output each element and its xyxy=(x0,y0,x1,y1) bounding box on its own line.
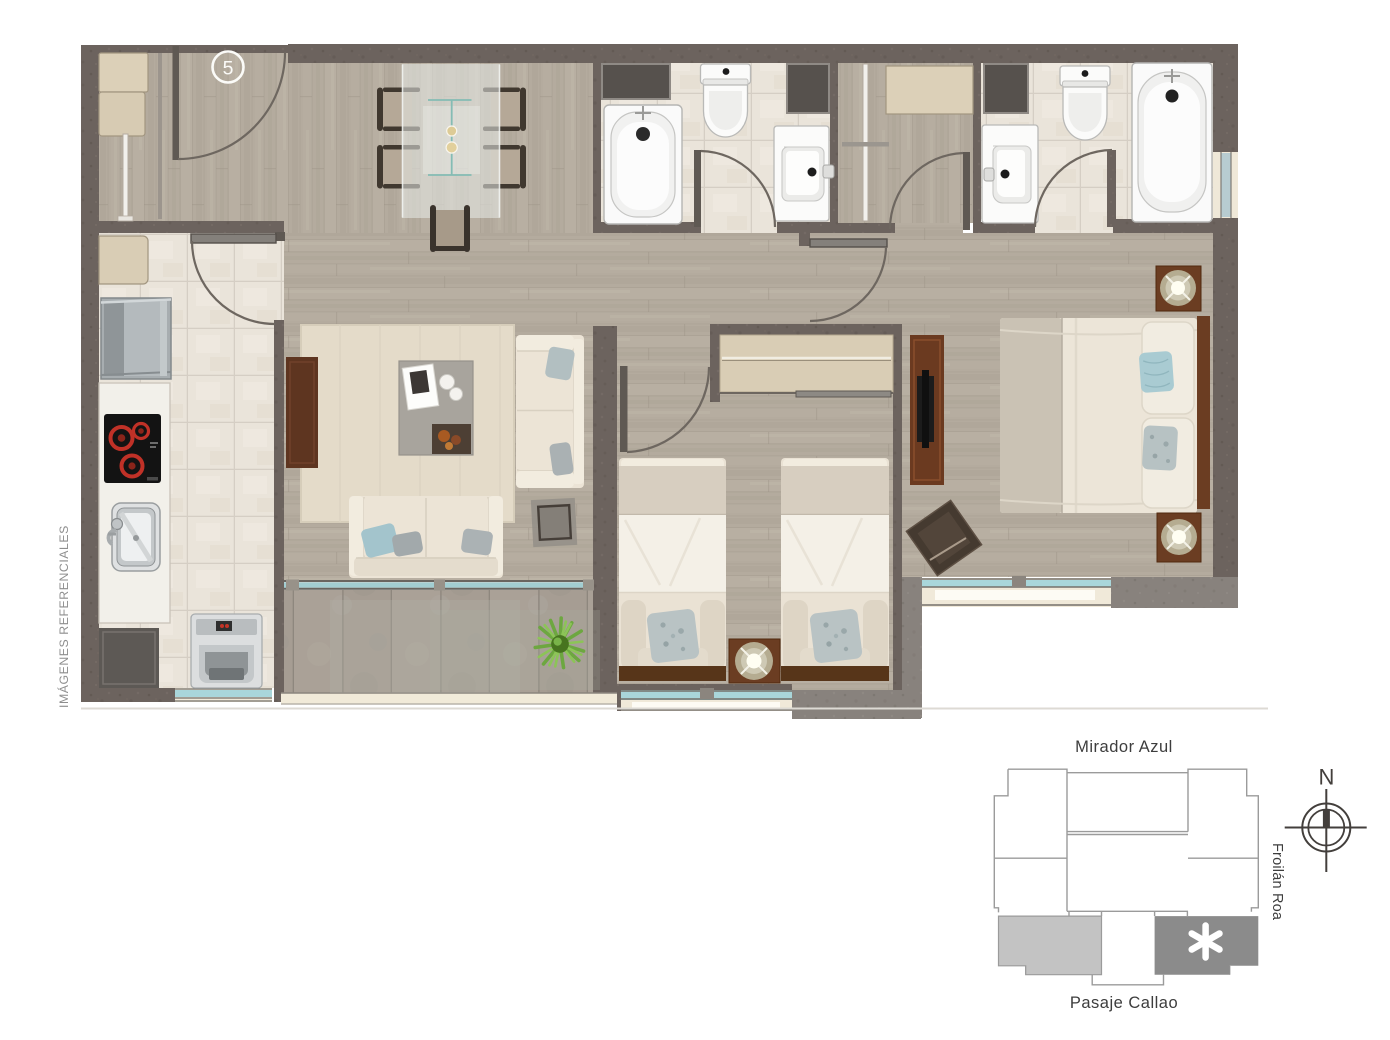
svg-text:Pasaje Callao: Pasaje Callao xyxy=(1070,994,1178,1012)
svg-text:Froilán Roa: Froilán Roa xyxy=(1269,843,1285,921)
svg-text:N: N xyxy=(1319,765,1335,790)
svg-text:5: 5 xyxy=(223,58,234,80)
svg-text:IMÁGENES REFERENCIALES: IMÁGENES REFERENCIALES xyxy=(56,525,71,708)
svg-text:Mirador Azul: Mirador Azul xyxy=(1075,738,1173,756)
